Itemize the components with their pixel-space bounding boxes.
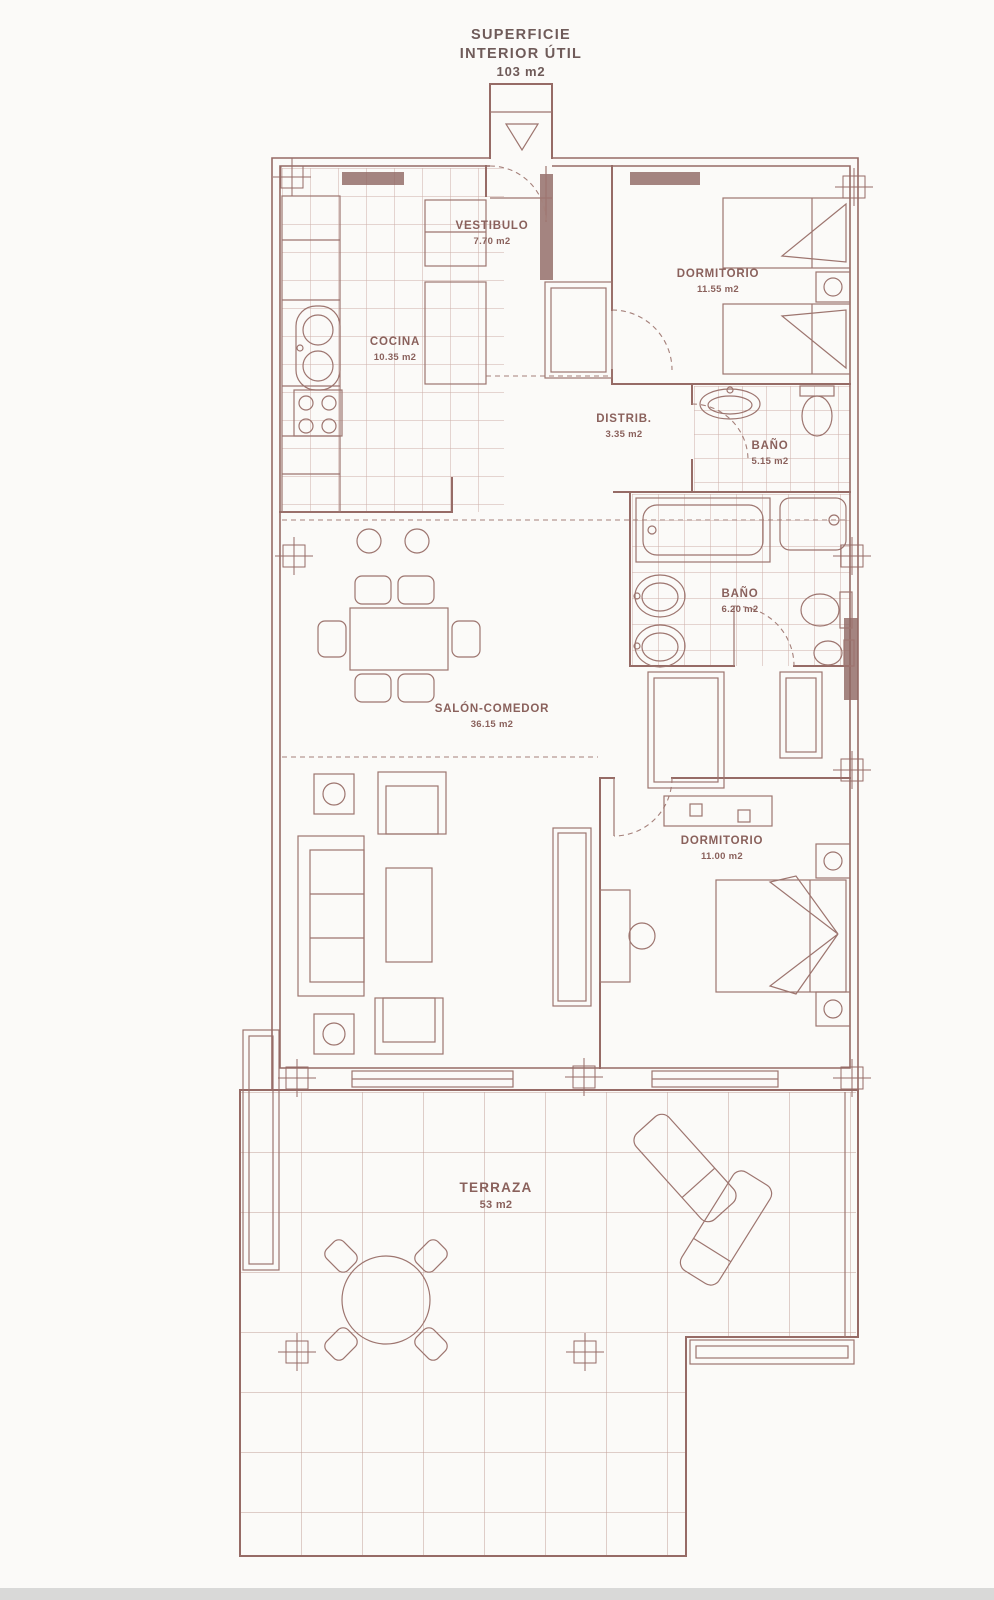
- room-label-dormitorio-2: DORMITORIO11.00 m2: [681, 833, 764, 863]
- floor-tiles: [240, 168, 856, 1556]
- single-bed: [723, 198, 850, 268]
- chair: [398, 674, 434, 702]
- room-label-bano-1: BAÑO5.15 m2: [751, 438, 788, 468]
- stool: [405, 529, 429, 553]
- terrace-parapet: [690, 1340, 854, 1364]
- room-label-vestibulo: VESTIBULO7.70 m2: [455, 218, 528, 248]
- chair: [355, 576, 391, 604]
- dining-table: [350, 608, 448, 670]
- side-window: [844, 618, 858, 700]
- desk: [600, 890, 630, 982]
- vestibule-closet: [545, 282, 612, 378]
- plan-title: SUPERFICIE INTERIOR ÚTIL 103 m2: [460, 26, 582, 81]
- single-bed: [723, 304, 850, 374]
- stool: [357, 529, 381, 553]
- kitchen-window: [342, 172, 404, 185]
- chair: [355, 674, 391, 702]
- room-label-distribuidor: DISTRIB.3.35 m2: [596, 411, 652, 441]
- armchair: [378, 772, 446, 834]
- footer-bar: [0, 1588, 994, 1600]
- side-table: [314, 1014, 354, 1054]
- room-label-dormitorio-1: DORMITORIO11.55 m2: [677, 266, 760, 296]
- chair: [398, 576, 434, 604]
- side-table: [314, 774, 354, 814]
- nightstand: [816, 992, 850, 1026]
- room-label-salon-comedor: SALÓN-COMEDOR36.15 m2: [435, 701, 550, 731]
- room-label-cocina: COCINA10.35 m2: [370, 334, 420, 364]
- chair: [452, 621, 480, 657]
- armchair: [375, 998, 443, 1054]
- tv-cabinet: [553, 828, 591, 1006]
- terrace-floor-tiles: [240, 1092, 856, 1556]
- nightstand: [816, 272, 850, 302]
- room-label-terraza: TERRAZA53 m2: [460, 1178, 533, 1214]
- double-bed: [716, 880, 846, 992]
- living-room-furniture: [298, 529, 591, 1054]
- room-label-bano-2: BAÑO6.20 m2: [721, 586, 758, 616]
- hallway-wardrobes: [648, 672, 822, 788]
- coffee-table: [386, 868, 432, 962]
- chair: [318, 621, 346, 657]
- apartment-floorplan: SUPERFICIE INTERIOR ÚTIL 103 m2 VESTIBUL…: [0, 0, 994, 1600]
- nightstand: [816, 844, 850, 878]
- sofa: [298, 836, 364, 996]
- entrance-arrow-icon: [506, 124, 538, 150]
- desk-chair: [629, 923, 655, 949]
- bedroom1-window: [630, 172, 700, 185]
- wardrobe: [664, 796, 772, 826]
